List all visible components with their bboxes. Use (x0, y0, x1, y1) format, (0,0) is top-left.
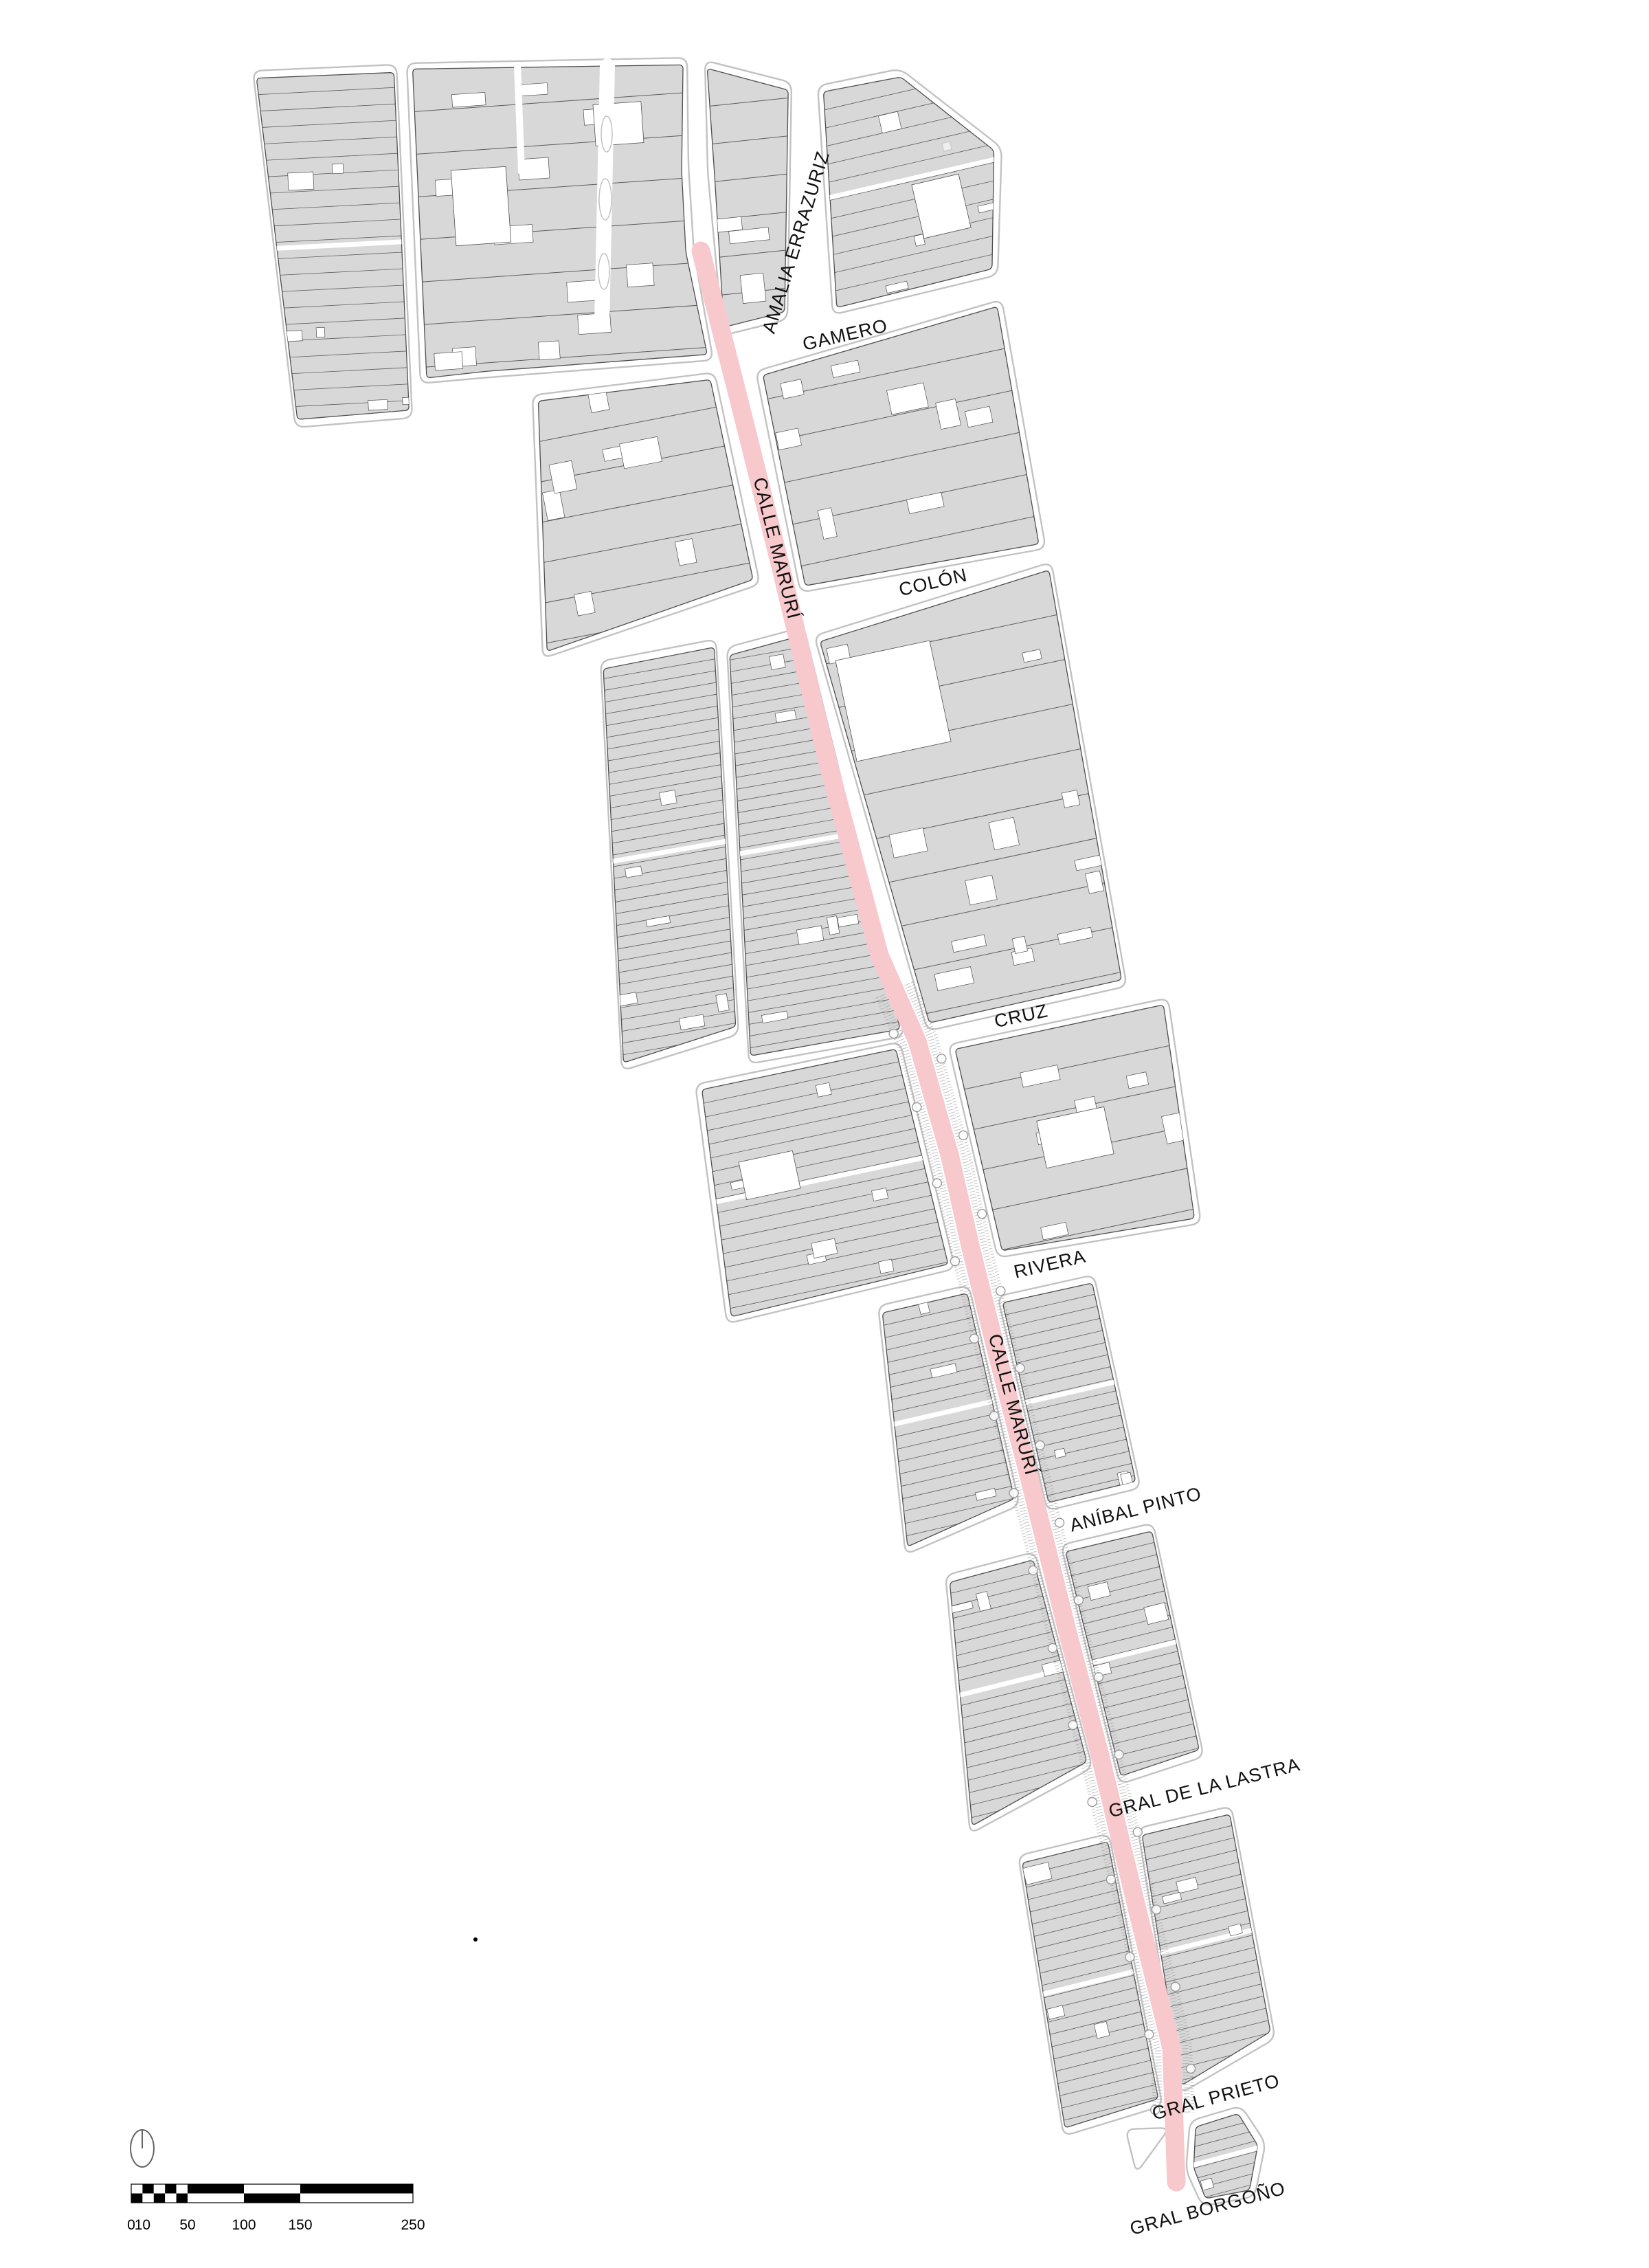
city-block (374, 58, 741, 383)
courtyard (660, 790, 677, 805)
courtyard (332, 164, 344, 174)
scale-bar: 01050100150250 (127, 2184, 425, 2233)
courtyard (740, 273, 766, 303)
courtyard (316, 327, 325, 337)
north-arrow-icon (131, 2130, 154, 2167)
courtyard (816, 1082, 831, 1097)
courtyard (626, 263, 654, 287)
courtyard (368, 399, 388, 410)
courtyard (1062, 790, 1080, 808)
figure-ground-map: AMALIA ERRAZURIZGAMEROCALLE MARURÍCOLÓNC… (0, 0, 1649, 2268)
courtyard (451, 92, 486, 107)
scale-bar-label: 150 (288, 2217, 312, 2233)
courtyard (965, 875, 998, 905)
city-block (1128, 2128, 1166, 2168)
scale-bar-label: 100 (232, 2217, 256, 2233)
map-page: AMALIA ERRAZURIZGAMEROCALLE MARURÍCOLÓNC… (0, 0, 1649, 2268)
scale-bar-label: 10 (135, 2217, 150, 2233)
courtyard (574, 591, 595, 616)
courtyard (538, 341, 560, 360)
courtyard (878, 1259, 894, 1274)
scale-bar-label: 50 (179, 2217, 195, 2233)
courtyard (288, 172, 314, 190)
city-blocks-layer (223, 58, 1323, 2207)
courtyard (770, 654, 786, 670)
courtyard (434, 352, 463, 370)
courtyard (451, 166, 511, 245)
courtyard (989, 817, 1019, 849)
city-block (930, 999, 1240, 1258)
landmark-square (942, 142, 952, 152)
point-marker (473, 1937, 478, 1942)
courtyard (835, 641, 951, 761)
scale-bar-label: 250 (401, 2217, 425, 2233)
